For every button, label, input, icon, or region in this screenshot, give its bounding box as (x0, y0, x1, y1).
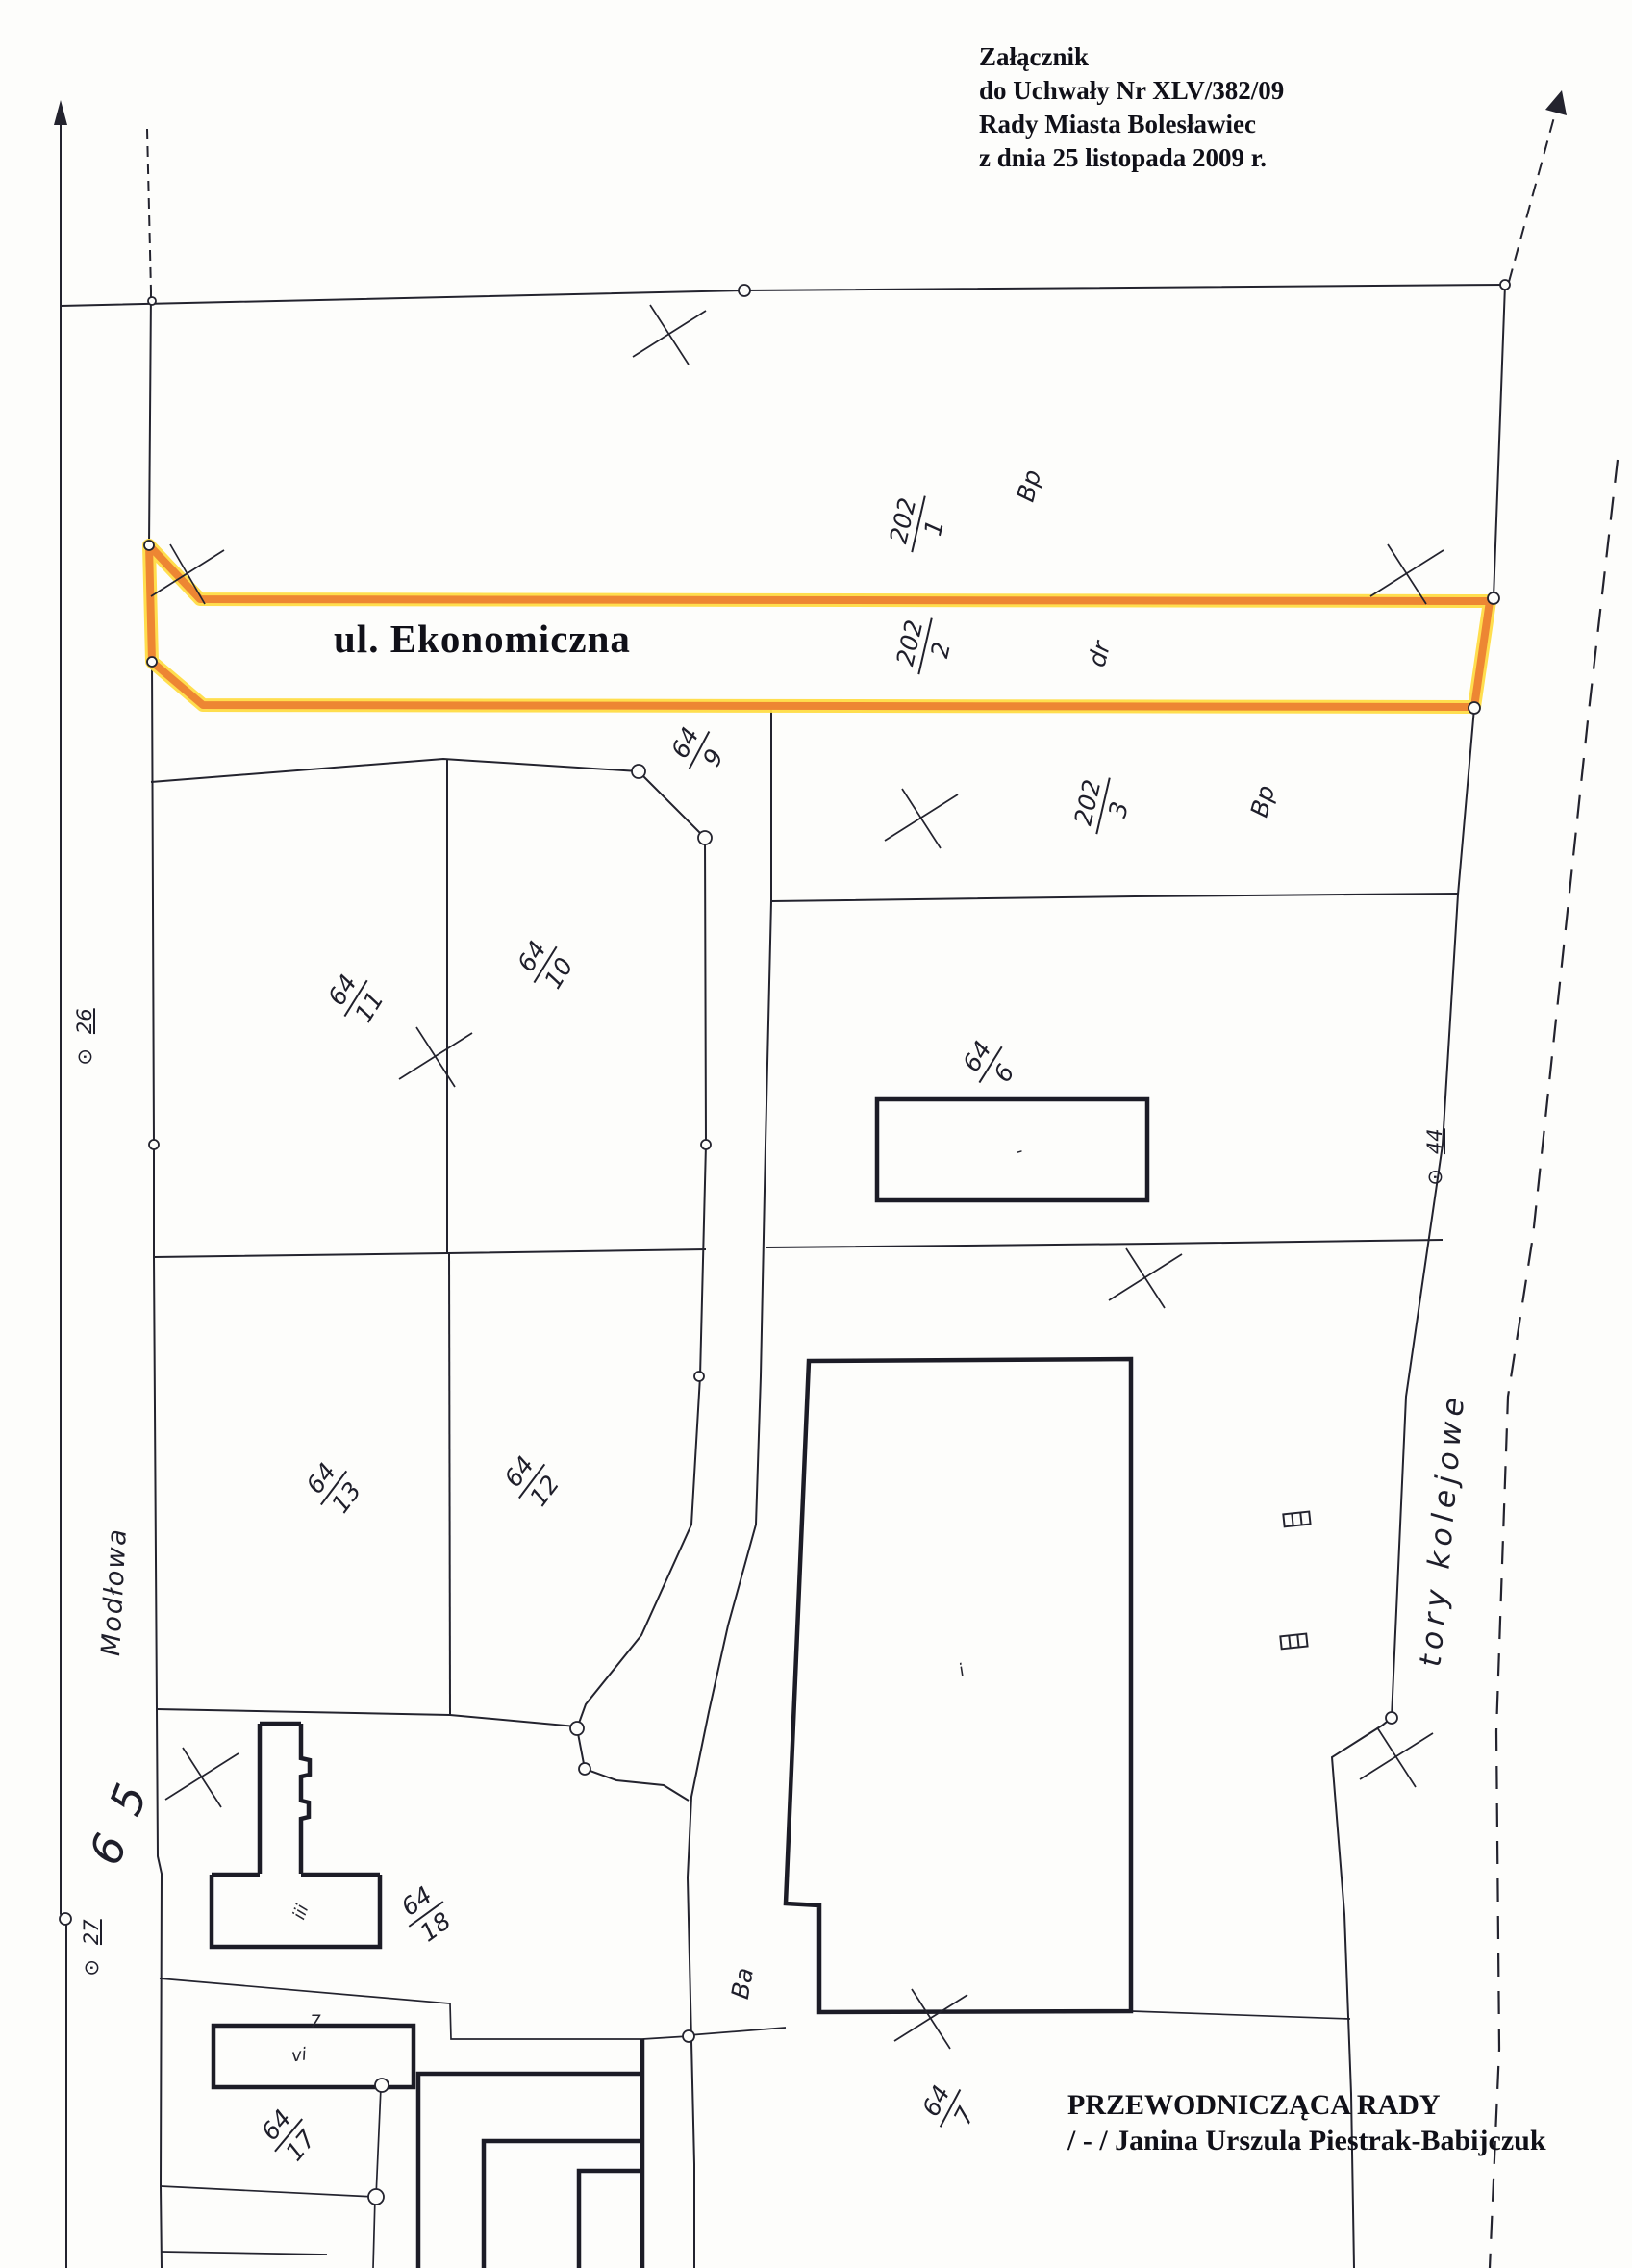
parcel-64-9-den: 9 (696, 743, 727, 769)
attachment-note-line3: Rady Miasta Bolesławiec (979, 108, 1284, 141)
attachment-note-line2: do Uchwały Nr XLV/382/09 (979, 74, 1284, 108)
parcel-64-7-den: 7 (947, 2102, 978, 2128)
parcel-202-1-den: 1 (917, 517, 947, 538)
attachment-note-line1: Załącznik (979, 40, 1284, 74)
map-canvas (0, 0, 1632, 2268)
building-steps (418, 2039, 642, 2268)
parcel-202-2-den: 2 (924, 639, 954, 660)
cadastral-map-page: Załącznik do Uchwały Nr XLV/382/09 Rady … (0, 0, 1632, 2268)
landuse-label-ba: Ba (726, 1965, 759, 2001)
boundary-cross-marks (151, 305, 1444, 2049)
survey-point-26: ⊙ 26 (73, 1008, 96, 1065)
building-64-6 (877, 1099, 1147, 1200)
survey-point-26-number: 26 (73, 1008, 96, 1034)
attachment-note: Załącznik do Uchwały Nr XLV/382/09 Rady … (979, 40, 1284, 175)
survey-dot-icon: ⊙ (1423, 1169, 1446, 1186)
railway-boxes (1280, 1512, 1310, 1650)
survey-point-44-number: 44 (1423, 1128, 1446, 1154)
highlighted-street-label: ul. Ekonomiczna (334, 616, 631, 662)
building-mark-vi: vi (290, 2045, 308, 2067)
survey-dot-icon: ⊙ (73, 1048, 96, 1066)
survey-point-44: ⊙ 44 (1423, 1128, 1446, 1185)
signature-block: PRZEWODNICZĄCA RADY / - / Janina Urszula… (1067, 2087, 1546, 2158)
parcel-boundaries (61, 96, 1618, 2268)
survey-point-27-number: 27 (80, 1919, 103, 1945)
parcel-202-3-den: 3 (1102, 798, 1132, 819)
survey-dot-icon: ⊙ (80, 1959, 103, 1977)
building-hall (786, 1359, 1131, 2012)
attachment-note-line4: z dnia 25 listopada 2009 r. (979, 141, 1284, 175)
signature-role: PRZEWODNICZĄCA RADY (1067, 2087, 1546, 2123)
signature-name: / - / Janina Urszula Piestrak-Babijczuk (1067, 2123, 1546, 2158)
parcel-64-6-den: 6 (988, 1059, 1018, 1086)
buildings (212, 1099, 1147, 2268)
north-arrow-icon (54, 90, 1567, 125)
building-mark-7: 7 (310, 2012, 320, 2032)
survey-point-27: ⊙ 27 (80, 1919, 103, 1976)
